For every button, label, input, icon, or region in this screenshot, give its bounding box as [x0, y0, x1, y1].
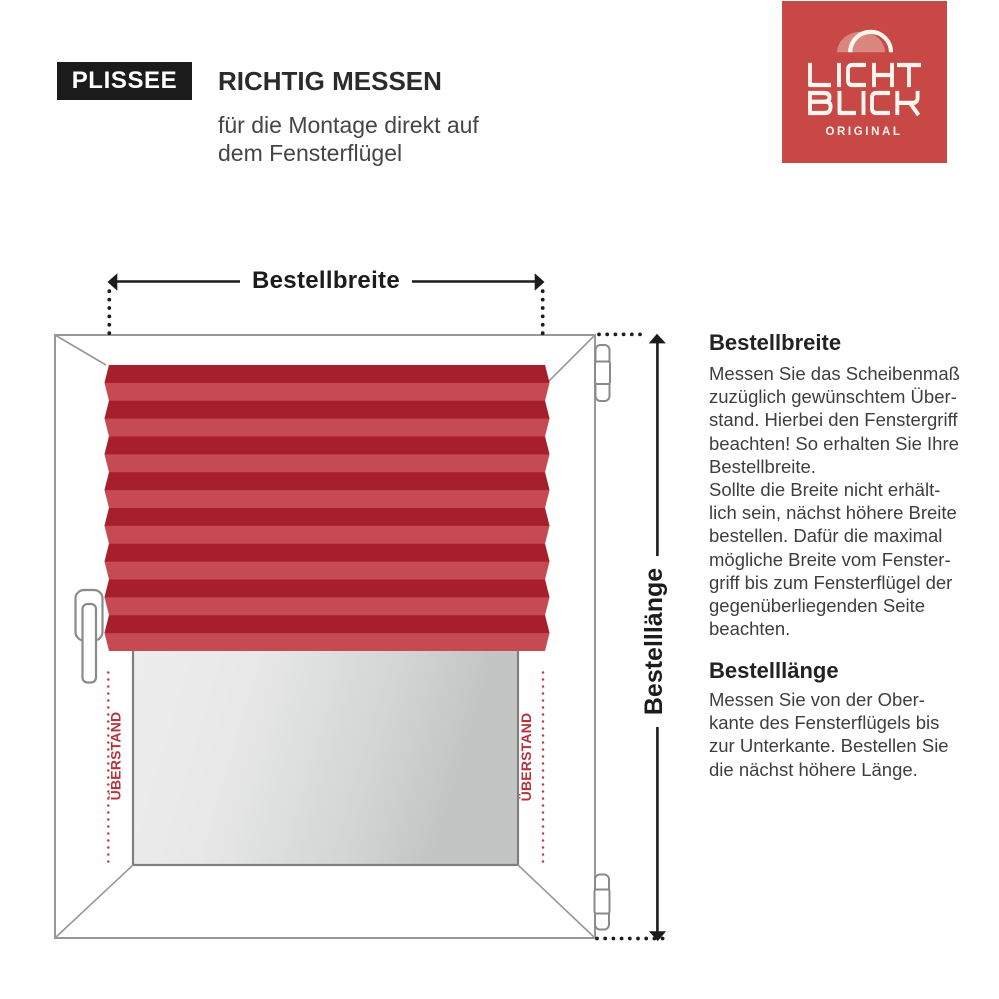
svg-text:ÜBERSTAND: ÜBERSTAND	[518, 713, 534, 802]
svg-text:ORIGINAL: ORIGINAL	[825, 126, 902, 138]
svg-text:Bestellbreite: Bestellbreite	[252, 267, 400, 294]
svg-text:ÜBERSTAND: ÜBERSTAND	[108, 712, 124, 801]
svg-text:Bestelllänge: Bestelllänge	[640, 568, 668, 715]
